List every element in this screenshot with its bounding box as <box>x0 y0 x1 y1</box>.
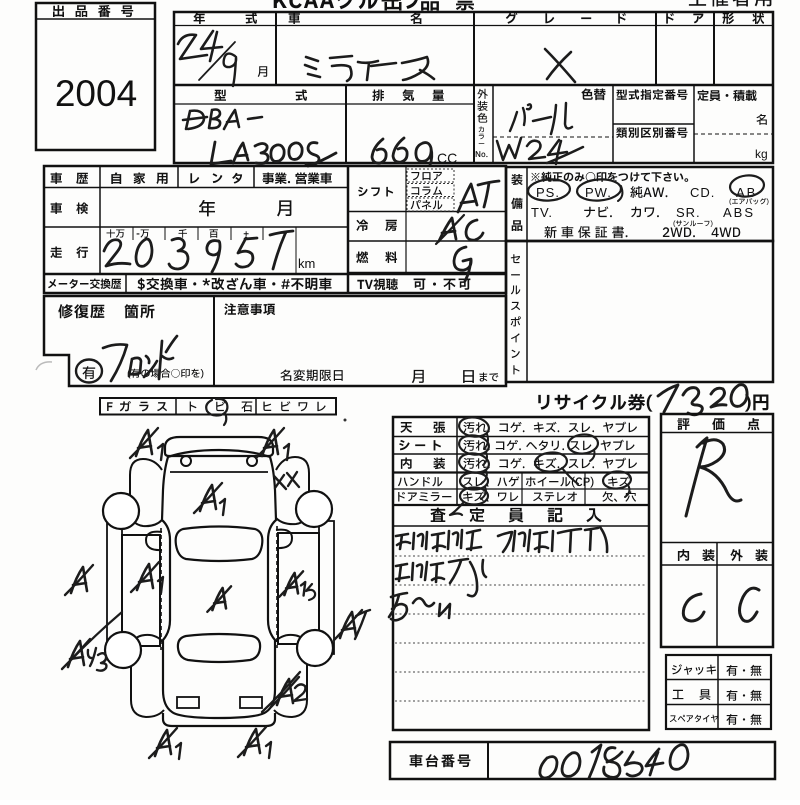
svg-text:SR.: SR. <box>676 205 701 220</box>
svg-text:PS.: PS. <box>536 185 560 200</box>
svg-text:PW.: PW. <box>585 185 612 200</box>
svg-text:km: km <box>298 256 315 271</box>
svg-text:AB: AB <box>736 185 757 200</box>
svg-text:CC: CC <box>437 150 457 166</box>
svg-text:kg: kg <box>755 147 768 161</box>
svg-text:CD.: CD. <box>690 185 715 200</box>
svg-text:2004: 2004 <box>55 73 137 114</box>
svg-text:ABS: ABS <box>723 205 755 220</box>
svg-text:TV.: TV. <box>531 205 553 220</box>
